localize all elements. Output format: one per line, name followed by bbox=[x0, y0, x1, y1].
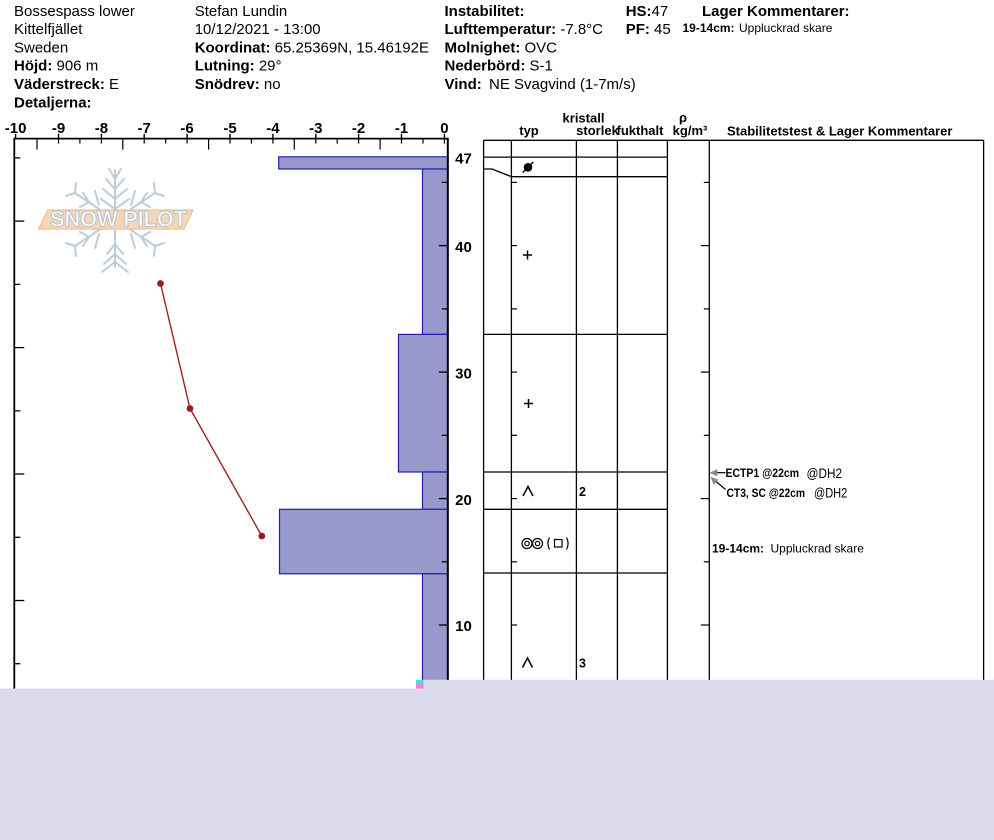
svg-text:storlek: storlek bbox=[576, 123, 619, 138]
svg-text:Stefan Lundin: Stefan Lundin bbox=[195, 3, 288, 20]
svg-text:Sweden: Sweden bbox=[14, 39, 68, 56]
svg-text:Detaljerna:: Detaljerna: bbox=[14, 94, 92, 111]
svg-text:20: 20 bbox=[455, 492, 472, 509]
svg-text:SNOW PILOT: SNOW PILOT bbox=[50, 207, 188, 232]
svg-text:Snödrev: no: Snödrev: no bbox=[195, 76, 281, 93]
svg-text:2: 2 bbox=[579, 485, 586, 499]
svg-text:19-14cm:: 19-14cm: bbox=[683, 21, 735, 35]
svg-text:Vind:NE Svagvind (1-7m/s): Vind:NE Svagvind (1-7m/s) bbox=[445, 76, 636, 93]
svg-text:ECTP1 @22cm: ECTP1 @22cm bbox=[726, 466, 800, 480]
svg-text:Instabilitet:: Instabilitet: bbox=[445, 3, 525, 20]
svg-text:PF: 45: PF: 45 bbox=[626, 21, 671, 38]
svg-text:Stabilitetstest & Lager Kommen: Stabilitetstest & Lager Kommentarer bbox=[727, 124, 952, 139]
svg-text:10/12/2021 - 13:00: 10/12/2021 - 13:00 bbox=[195, 21, 321, 38]
svg-text:Uppluckrad skare: Uppluckrad skare bbox=[771, 542, 865, 556]
svg-text:@DH2: @DH2 bbox=[814, 484, 847, 500]
svg-text:19-14cm:: 19-14cm: bbox=[712, 542, 764, 556]
svg-text:Kittelfjället: Kittelfjället bbox=[14, 21, 83, 38]
svg-text:3: 3 bbox=[579, 657, 586, 671]
svg-text:Koordinat: 65.25369N, 15.46192: Koordinat: 65.25369N, 15.46192E bbox=[195, 39, 429, 56]
svg-text:Uppluckrad skare: Uppluckrad skare bbox=[739, 21, 833, 35]
svg-text:40: 40 bbox=[455, 239, 472, 256]
svg-text:47: 47 bbox=[455, 150, 472, 167]
svg-text:Väderstreck: E: Väderstreck: E bbox=[14, 76, 119, 93]
svg-text:10: 10 bbox=[455, 618, 472, 635]
svg-text:kg/m³: kg/m³ bbox=[673, 123, 708, 138]
svg-text:Lufttemperatur: -7.8°C: Lufttemperatur: -7.8°C bbox=[445, 21, 604, 38]
svg-text:HS:47: HS:47 bbox=[626, 3, 669, 20]
svg-text:Bossespass lower: Bossespass lower bbox=[14, 3, 135, 20]
svg-text:Molnighet: OVC: Molnighet: OVC bbox=[445, 39, 558, 56]
svg-text:Nederbörd: S-1: Nederbörd: S-1 bbox=[445, 58, 553, 75]
svg-text:@DH2: @DH2 bbox=[807, 465, 843, 481]
svg-text:Lager Kommentarer:: Lager Kommentarer: bbox=[702, 3, 850, 20]
svg-text:CT3, SC @22cm: CT3, SC @22cm bbox=[727, 486, 806, 500]
svg-text:typ: typ bbox=[519, 123, 539, 138]
svg-text:fukthalt: fukthalt bbox=[617, 123, 665, 138]
svg-text:Lutning: 29°: Lutning: 29° bbox=[195, 58, 282, 75]
svg-text:30: 30 bbox=[455, 365, 472, 382]
svg-text:Höjd: 906 m: Höjd: 906 m bbox=[14, 58, 98, 75]
